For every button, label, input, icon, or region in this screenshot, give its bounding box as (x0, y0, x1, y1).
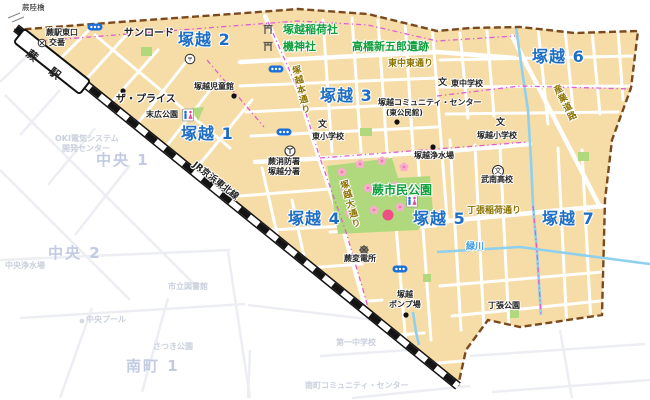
label-takahashi-ruins: 高橋新五郎遺跡 (352, 41, 429, 53)
city-district-map: 〒 (0, 0, 650, 400)
label-jidokan: 塚越児童館 (194, 83, 234, 91)
label-station-east-exit: 蕨駅東口 (46, 29, 78, 37)
traffic-light-icon (393, 266, 408, 273)
school-mark-icon: 文 (496, 119, 505, 128)
faded-label-oki-1: OKI電気システム (55, 135, 119, 143)
district-label-5: 塚越 5 (413, 211, 466, 228)
faded-label-daiichi-jhs: 第一中学校 (336, 339, 376, 347)
faded-label-library: 市立図書館 (168, 283, 208, 291)
label-chohari-park: 丁張公園 (488, 302, 520, 310)
faded-dot (80, 319, 85, 324)
label-fire-station-2: 塚越分署 (268, 168, 300, 176)
district-label-1: 塚越 1 (181, 126, 234, 143)
faded-label-chuo-josui: 中央浄水場 (5, 262, 45, 270)
post-office-icon: 〒 (185, 54, 195, 64)
label-rikkyo-bridge: 蕨陸橋 (22, 4, 45, 12)
label-community-center-sub: (東公民館) (386, 109, 423, 117)
label-higashi-junior-high: 東中学校 (451, 80, 483, 88)
faded-label-minami1: 南町 1 (126, 359, 180, 375)
faded-label-chuo-pool: 中央プール (86, 316, 126, 324)
faded-label-chuo2: 中央 2 (48, 246, 102, 262)
label-pump-station-2: ポンプ場 (389, 301, 421, 309)
district-label-6: 塚越 6 (532, 49, 585, 66)
label-sunroad: サンロード (124, 29, 174, 40)
label-hata-shrine: 機神社 (283, 41, 316, 53)
label-inari-shrine: 塚越稲荷社 (283, 24, 338, 36)
district-label-2: 塚越 2 (178, 32, 231, 49)
label-bunan-high-school: 武南高校 (481, 176, 513, 184)
svg-text:〒: 〒 (187, 56, 193, 63)
school-mark-icon: 文 (318, 121, 327, 130)
school-mark-icon: 文 (438, 79, 447, 88)
faded-label-chuo1: 中央 1 (96, 153, 150, 169)
faded-label-minami-cc: 南町コミュニティ・センター (305, 382, 409, 390)
label-pump-station-1: 塚越 (397, 291, 413, 299)
label-fire-station-1: 蕨消防署 (268, 158, 300, 166)
label-suehiro-park: 末広公園 (146, 111, 178, 119)
label-tsukagoshi-elementary: 塚越小学校 (477, 132, 517, 140)
road-label-chohari-inari: 丁張稲荷通り (467, 207, 521, 216)
traffic-light-icon (277, 129, 292, 136)
district-label-3: 塚越 3 (320, 88, 373, 105)
fire-station-icon (285, 146, 295, 156)
restroom-icon (183, 109, 194, 121)
traffic-light-icon (269, 66, 284, 73)
river-label-midorikawa: 緑川 (466, 243, 484, 252)
label-higashi-elementary: 東小学校 (312, 133, 344, 141)
district-label-7: 塚越 7 (542, 211, 595, 228)
traffic-light-icon (88, 24, 103, 31)
label-substation: 蕨変電所 (344, 255, 376, 263)
faded-label-satsuki: さつき公園 (153, 343, 193, 351)
label-water-plant: 塚越浄水場 (414, 152, 454, 160)
police-box-icon (38, 39, 46, 47)
label-koban: 交番 (49, 39, 65, 47)
label-community-center: 塚越コミュニティ・センター (378, 99, 482, 107)
bridge-mark (8, 13, 24, 22)
label-citizen-park: 蕨市民公園 (372, 184, 432, 197)
park-pond (383, 210, 394, 221)
road-label-higashinaka: 東中東通り (388, 60, 433, 69)
label-the-price: ザ・プライス (116, 95, 176, 106)
district-label-4: 塚越 4 (288, 211, 341, 228)
